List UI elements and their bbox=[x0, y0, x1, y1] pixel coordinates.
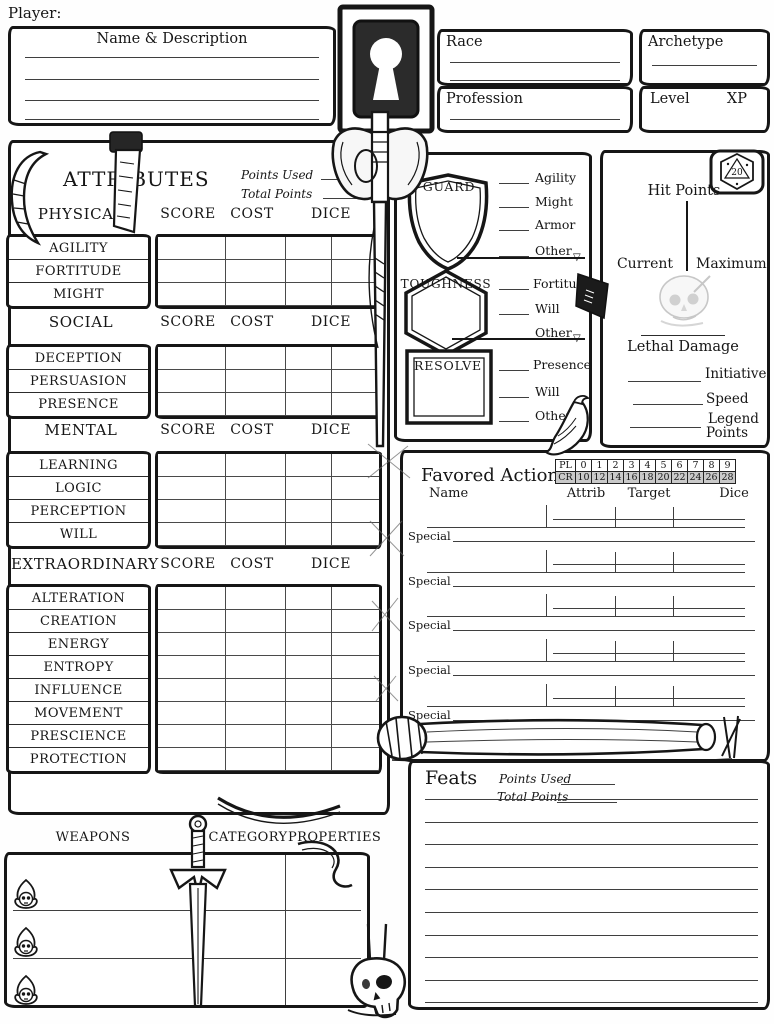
score-column-header: SCORE bbox=[153, 314, 223, 330]
cr-cell: 20 bbox=[656, 472, 672, 484]
name-description-box: Name & Description bbox=[8, 26, 336, 126]
strap-band-icon bbox=[574, 268, 614, 326]
cr-cell: 22 bbox=[672, 472, 688, 484]
pl-cell: 0 bbox=[576, 460, 592, 472]
race-line[interactable] bbox=[450, 62, 620, 63]
cr-cell: 16 bbox=[624, 472, 640, 484]
attribute-label: FORTITUDE bbox=[9, 260, 148, 283]
cr-cell: 14 bbox=[608, 472, 624, 484]
bedroll-icon bbox=[372, 712, 770, 764]
feat-line[interactable] bbox=[425, 799, 758, 800]
spider-web-icon bbox=[364, 426, 420, 718]
current-label: Current bbox=[615, 256, 675, 272]
guard-mod-line[interactable] bbox=[499, 207, 529, 208]
hp-current-area[interactable] bbox=[613, 201, 683, 256]
dice-column-header: DICE bbox=[296, 556, 366, 572]
action-subline[interactable] bbox=[553, 698, 745, 699]
pl-cell: 1 bbox=[592, 460, 608, 472]
feats-panel: Feats Points Used Total Points bbox=[408, 760, 770, 1010]
attribute-label: CREATION bbox=[9, 610, 148, 633]
mental-labels: LEARNING LOGIC PERCEPTION WILL bbox=[6, 451, 151, 549]
cr-cell: 28 bbox=[720, 472, 736, 484]
pl-cell: 5 bbox=[656, 460, 672, 472]
cr-cell: CR bbox=[556, 472, 576, 484]
attribute-label: DECEPTION bbox=[9, 347, 148, 370]
hanging-strap-icon bbox=[102, 130, 170, 242]
resolve-mod-label: Presence bbox=[533, 357, 591, 372]
archetype-label: Archetype bbox=[648, 34, 723, 50]
attribute-grid-row[interactable] bbox=[158, 500, 379, 523]
defense-divider bbox=[457, 257, 585, 259]
guard-mod-label: Agility bbox=[535, 170, 576, 185]
skull-icon bbox=[346, 922, 412, 1022]
guard-mod-label: Other bbox=[535, 243, 572, 258]
extraordinary-labels: ALTERATION CREATION ENERGY ENTROPY INFLU… bbox=[6, 584, 151, 774]
initiative-line[interactable] bbox=[628, 381, 701, 382]
action-name-line[interactable] bbox=[427, 572, 745, 573]
feat-line[interactable] bbox=[425, 980, 758, 981]
feat-line[interactable] bbox=[425, 935, 758, 936]
attribute-label: ENERGY bbox=[9, 633, 148, 656]
flaming-skull-icon bbox=[13, 927, 39, 957]
cr-cell: 24 bbox=[688, 472, 704, 484]
social-labels: DECEPTION PERSUASION PRESENCE bbox=[6, 344, 151, 419]
feat-line[interactable] bbox=[425, 844, 758, 845]
hp-maximum-area[interactable] bbox=[693, 201, 763, 256]
action-name-line[interactable] bbox=[427, 706, 745, 707]
attribute-label: INFLUENCE bbox=[9, 679, 148, 702]
skull-ghost-icon bbox=[653, 273, 717, 333]
action-subline[interactable] bbox=[553, 519, 745, 520]
attribute-grid-row[interactable] bbox=[158, 725, 379, 748]
rope-arc-icon bbox=[210, 790, 348, 836]
lethal-damage-label: Lethal Damage bbox=[625, 339, 741, 355]
initiative-label: Initiative bbox=[705, 366, 767, 382]
profession-box: Profession bbox=[437, 86, 633, 133]
cr-cell: 26 bbox=[704, 472, 720, 484]
maximum-label: Maximum bbox=[696, 256, 760, 272]
feat-line[interactable] bbox=[425, 1002, 758, 1003]
dice-column-header: Dice bbox=[711, 486, 757, 501]
profession-line[interactable] bbox=[450, 119, 620, 120]
action-subline[interactable] bbox=[553, 653, 745, 654]
score-column-header: SCORE bbox=[153, 422, 223, 438]
attribute-label: WILL bbox=[9, 523, 148, 546]
action-name-line[interactable] bbox=[427, 661, 745, 662]
attribute-grid-row[interactable] bbox=[158, 523, 379, 546]
race-line[interactable] bbox=[450, 80, 620, 81]
xp-label: XP bbox=[727, 91, 747, 107]
defense-divider bbox=[452, 338, 585, 340]
level-xp-box[interactable]: Level XP bbox=[639, 86, 770, 133]
attribute-label: PERCEPTION bbox=[9, 500, 148, 523]
pl-cell: 7 bbox=[688, 460, 704, 472]
cost-column-header: COST bbox=[222, 422, 282, 438]
legend-points-label: Points bbox=[706, 425, 748, 441]
attribute-grid-row[interactable] bbox=[158, 610, 379, 633]
attribute-label: LEARNING bbox=[9, 454, 148, 477]
extraordinary-grid bbox=[155, 584, 382, 774]
feat-line[interactable] bbox=[425, 889, 758, 890]
sword-icon bbox=[168, 814, 228, 1016]
attribute-grid-row[interactable] bbox=[158, 587, 379, 610]
resolve-mod-line[interactable] bbox=[499, 421, 529, 422]
feat-line[interactable] bbox=[425, 912, 758, 913]
action-name-line[interactable] bbox=[427, 616, 745, 617]
special-line[interactable] bbox=[453, 630, 755, 631]
mental-grid bbox=[155, 451, 382, 549]
attribute-label: MOVEMENT bbox=[9, 702, 148, 725]
cost-column-header: COST bbox=[222, 556, 282, 572]
toughness-mod-line[interactable] bbox=[499, 314, 529, 315]
attribute-label: MIGHT bbox=[9, 283, 148, 306]
guard-mod-label: Might bbox=[535, 194, 573, 209]
weapon-row[interactable] bbox=[43, 855, 283, 910]
guard-mod-line[interactable] bbox=[499, 230, 529, 231]
archetype-box: Archetype bbox=[639, 29, 770, 86]
hp-divider bbox=[686, 201, 688, 271]
player-label: Player: bbox=[8, 4, 61, 22]
weapon-row[interactable] bbox=[43, 910, 283, 958]
action-name-line[interactable] bbox=[427, 527, 745, 528]
attribute-label: PERSUASION bbox=[9, 370, 148, 393]
attribute-grid-row[interactable] bbox=[158, 656, 379, 679]
points-used-label: Points Used bbox=[241, 168, 313, 182]
pl-cell: 8 bbox=[704, 460, 720, 472]
favored-actions-title: Favored Actions bbox=[421, 465, 568, 486]
resolve-mod-line[interactable] bbox=[499, 397, 529, 398]
attribute-grid-row[interactable] bbox=[158, 748, 379, 771]
special-line[interactable] bbox=[453, 586, 755, 587]
pepper-icon bbox=[542, 392, 596, 460]
score-column-header: SCORE bbox=[153, 556, 223, 572]
feat-line[interactable] bbox=[425, 867, 758, 868]
attrib-column-header: Attrib bbox=[553, 486, 619, 501]
triangle-marker-icon: ▽ bbox=[573, 333, 581, 344]
cr-cell: 10 bbox=[576, 472, 592, 484]
feats-points-used-line[interactable] bbox=[561, 784, 615, 785]
toughness-mod-line[interactable] bbox=[499, 289, 529, 290]
name-line[interactable] bbox=[25, 119, 319, 120]
feat-line[interactable] bbox=[425, 957, 758, 958]
triangle-marker-icon: ▽ bbox=[573, 252, 581, 263]
special-line[interactable] bbox=[453, 541, 755, 542]
group-header-mental: MENTAL bbox=[11, 421, 151, 439]
name-line[interactable] bbox=[25, 100, 319, 101]
action-subline[interactable] bbox=[553, 608, 745, 609]
attribute-label: LOGIC bbox=[9, 477, 148, 500]
speed-label: Speed bbox=[706, 391, 749, 407]
horn-icon bbox=[0, 146, 54, 248]
name-line[interactable] bbox=[25, 57, 319, 58]
cost-column-header: COST bbox=[222, 206, 282, 222]
name-column-header: Name bbox=[429, 486, 468, 501]
speed-line[interactable] bbox=[633, 404, 703, 405]
name-box-title: Name & Description bbox=[11, 29, 333, 47]
weapon-row[interactable] bbox=[43, 958, 283, 1005]
flaming-skull-icon bbox=[13, 879, 39, 909]
group-header-extraordinary: EXTRAORDINARY bbox=[11, 555, 151, 573]
attribute-label: PROTECTION bbox=[9, 748, 148, 771]
race-box: Race bbox=[437, 29, 633, 86]
attribute-grid-row[interactable] bbox=[158, 679, 379, 702]
group-header-social: SOCIAL bbox=[11, 313, 151, 331]
weapons-column-divider bbox=[285, 855, 286, 1005]
battle-axe-icon bbox=[328, 108, 432, 458]
profession-label: Profession bbox=[446, 91, 523, 107]
hit-points-label: Hit Points bbox=[635, 183, 733, 199]
pl-cell: 6 bbox=[672, 460, 688, 472]
level-label: Level bbox=[650, 91, 690, 107]
name-line[interactable] bbox=[25, 79, 319, 80]
feat-line[interactable] bbox=[425, 822, 758, 823]
lethal-overline bbox=[641, 335, 725, 336]
action-subline[interactable] bbox=[553, 564, 745, 565]
vitals-panel: 20 Hit Points Current Maximum Lethal Dam… bbox=[600, 150, 770, 448]
pl-cell: 4 bbox=[640, 460, 656, 472]
feats-total-points-line[interactable] bbox=[557, 802, 617, 803]
d20-number: 20 bbox=[731, 168, 743, 178]
total-points-label: Total Points bbox=[241, 187, 312, 201]
cr-cell: 18 bbox=[640, 472, 656, 484]
attribute-label: PRESENCE bbox=[9, 393, 148, 416]
character-sheet: Player: Name & Description Race Professi… bbox=[0, 0, 774, 1024]
attribute-grid-row[interactable] bbox=[158, 633, 379, 656]
attribute-label: PRESCIENCE bbox=[9, 725, 148, 748]
resolve-mod-line[interactable] bbox=[499, 370, 529, 371]
target-column-header: Target bbox=[621, 486, 677, 501]
attribute-label: ENTROPY bbox=[9, 656, 148, 679]
guard-mod-label: Armor bbox=[535, 217, 575, 232]
cr-cell: 12 bbox=[592, 472, 608, 484]
attribute-grid-row[interactable] bbox=[158, 702, 379, 725]
legend-points-line[interactable] bbox=[630, 427, 701, 428]
pl-cell: 3 bbox=[624, 460, 640, 472]
flaming-skull-icon bbox=[13, 975, 39, 1005]
pl-cell: PL bbox=[556, 460, 576, 472]
pl-cell: 9 bbox=[720, 460, 736, 472]
race-label: Race bbox=[446, 34, 483, 50]
pl-cr-table: PL0123456789 CR10121416182022242628 bbox=[555, 459, 736, 484]
guard-mod-line[interactable] bbox=[499, 183, 529, 184]
toughness-mod-label: Will bbox=[535, 301, 560, 316]
rope-icon bbox=[292, 836, 358, 900]
weapons-header: WEAPONS bbox=[55, 830, 131, 845]
archetype-line[interactable] bbox=[652, 65, 757, 66]
attribute-label: ALTERATION bbox=[9, 587, 148, 610]
special-line[interactable] bbox=[453, 675, 755, 676]
pl-cell: 2 bbox=[608, 460, 624, 472]
attribute-grid-row[interactable] bbox=[158, 477, 379, 500]
cost-column-header: COST bbox=[222, 314, 282, 330]
feats-title: Feats bbox=[425, 767, 477, 789]
